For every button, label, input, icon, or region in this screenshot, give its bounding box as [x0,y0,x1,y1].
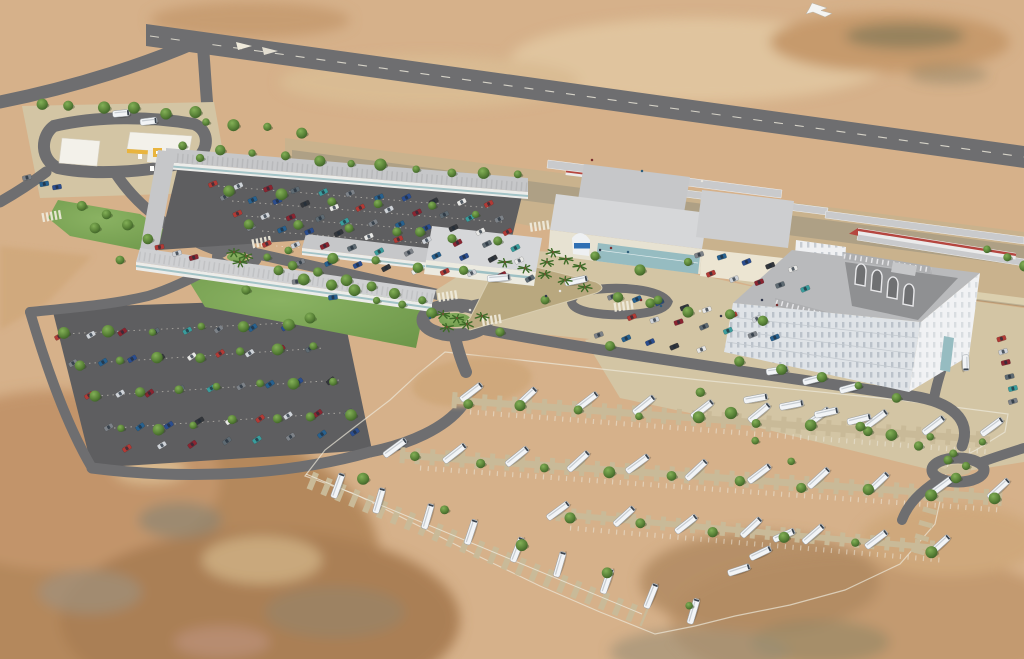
tree [758,316,768,326]
tree [752,419,761,428]
tree [851,539,859,547]
tree [472,211,479,218]
tree [367,281,377,291]
tree [914,441,923,450]
aerial-rendering: 3D aerial rendering of a desert intermod… [0,0,1024,659]
tree [228,415,237,424]
tree [135,387,145,397]
tree [989,492,1001,504]
car [328,294,338,300]
tree [256,379,264,387]
tree [635,413,643,421]
tree [345,224,354,233]
person [776,304,779,307]
tree [341,274,353,286]
tree [263,123,271,131]
tree [855,382,862,389]
tree [296,128,307,139]
fuel-canopy-west [59,138,100,166]
tree [855,422,865,432]
tree [98,101,110,113]
tree [943,455,952,464]
tree [215,145,225,155]
tree [149,329,156,336]
tree [602,567,613,578]
tree [314,155,325,166]
tree [392,227,401,236]
tree [925,489,937,501]
tree [682,307,693,318]
tree [63,101,73,111]
tree [541,296,550,305]
tree [696,388,705,397]
tree [327,197,336,206]
tree [90,223,101,234]
tree [418,296,426,304]
person [610,247,613,250]
tree [283,319,295,331]
tree [389,288,400,299]
tree [886,429,898,441]
tree [345,409,357,421]
tree [685,602,693,610]
tree [349,284,361,296]
tree [735,476,745,486]
tree [428,202,436,210]
tree [635,518,645,528]
tree [248,149,255,156]
station-sign [574,243,590,249]
tree [983,246,991,254]
bus [961,355,970,373]
tree [223,185,234,196]
tree [241,285,250,294]
tree [540,464,549,473]
person [559,290,562,293]
scene-svg: 3D aerial rendering of a desert intermod… [0,0,1024,659]
tree [117,425,124,432]
tree [89,390,100,401]
tree [160,108,171,119]
tree [634,264,645,275]
tree [175,385,184,394]
tree [189,106,201,118]
tree [725,309,735,319]
person [469,309,472,312]
tree [347,160,354,167]
tree [459,266,468,275]
tree [197,323,204,330]
tree [189,422,196,429]
tree [287,378,299,390]
person [429,317,432,320]
tree [463,399,473,409]
tree [288,261,298,271]
tree [817,372,827,382]
tree [476,459,485,468]
person [699,310,702,313]
tree [75,360,85,370]
tree [272,343,284,355]
person [545,295,548,298]
tree [426,308,437,319]
tree [516,539,528,551]
tree [495,327,504,336]
tree [863,484,874,495]
tree [281,151,290,160]
tree [603,466,615,478]
tree [298,274,310,286]
tree [195,353,205,363]
tree [725,407,737,419]
tree [667,471,677,481]
person [640,299,643,302]
tree [734,356,744,366]
tree [371,256,379,264]
tree [493,236,502,245]
tree [102,210,112,220]
tree [153,424,165,436]
tree [805,419,817,431]
tree [565,512,576,523]
tree [398,301,406,309]
tree [514,400,525,411]
tree [979,438,986,445]
person [720,315,723,318]
tree [196,154,204,162]
tree [116,357,124,365]
tree [412,165,419,172]
tree [787,458,795,466]
person [701,180,704,183]
tree [313,267,322,276]
tree [329,378,337,386]
person [599,249,602,252]
tree [236,347,244,355]
tree [605,341,615,351]
tree [447,168,456,177]
tree [776,364,787,375]
tree [892,393,902,403]
tree [143,234,154,245]
tree [707,527,717,537]
tree [306,412,315,421]
tree [654,296,663,305]
tree [238,321,249,332]
tree [926,433,933,440]
tree [796,483,806,493]
tree [374,158,386,170]
person [761,299,764,302]
tree [178,141,187,150]
tree [1003,253,1011,261]
tree [413,262,423,272]
tree [447,234,456,243]
tree [326,279,337,290]
tree [574,405,583,414]
tree [684,258,692,266]
tree [962,462,970,470]
tree [373,297,380,304]
tree [284,247,292,255]
tree [751,437,759,445]
tree [440,505,449,514]
tree [274,265,284,275]
tree [58,327,70,339]
tree [374,199,383,208]
tree [951,473,962,484]
tree [305,313,316,324]
tree [244,219,254,229]
tree [263,253,271,261]
tree [613,292,623,302]
tree [293,220,303,230]
tree [357,473,369,485]
tree [77,201,87,211]
tree [590,251,599,260]
tree [327,253,338,264]
tree [309,342,317,350]
person [641,170,644,173]
tree [37,99,48,110]
tree [116,256,125,265]
person [660,305,663,308]
tree [273,414,282,423]
tree [122,219,133,230]
tree [514,170,522,178]
tree [693,411,705,423]
tree [202,118,210,126]
tree [779,532,790,543]
tree [151,352,162,363]
tree [102,325,114,337]
tree [275,188,287,200]
person [627,251,630,254]
tree [410,451,420,461]
tree [128,102,140,114]
tree [478,167,490,179]
tree [227,119,239,131]
tree [213,383,221,391]
person [591,159,594,162]
tree [415,227,425,237]
tree [925,546,937,558]
